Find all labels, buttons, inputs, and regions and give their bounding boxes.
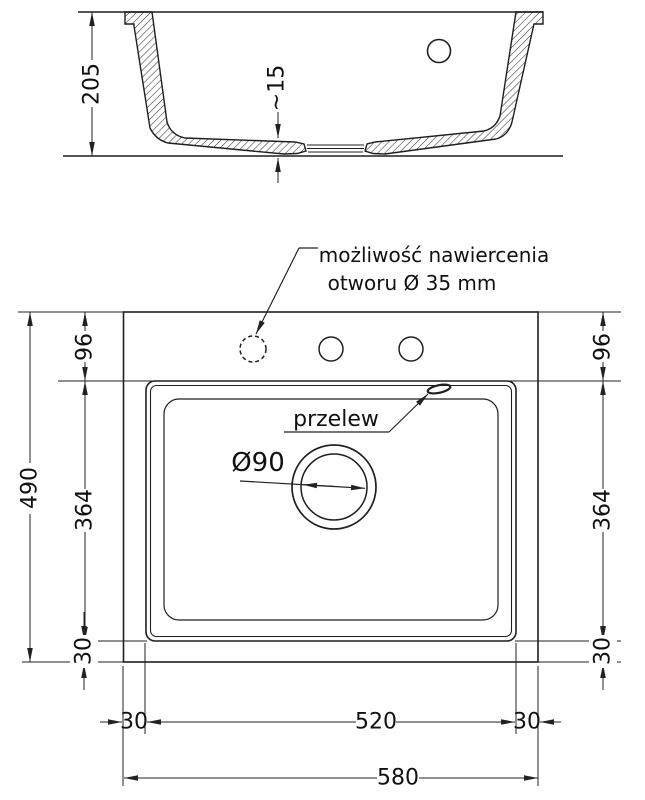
dim-bottom-right-label: 30 — [513, 710, 541, 735]
dim-floor-thickness-label: ~15 — [265, 65, 290, 111]
faucet-hole-right — [399, 337, 423, 361]
section-right-wall — [365, 12, 543, 154]
sink-technical-drawing: 205 ~15 możliwość nawiercenia otworu Ø 3… — [0, 0, 645, 800]
drill-note-line1: możliwość nawiercenia — [319, 243, 549, 267]
dim-left-bottom-label: 30 — [72, 637, 97, 665]
dim-right-bottom-label: 30 — [591, 637, 616, 665]
dim-left-bowl-label: 364 — [73, 489, 98, 531]
dim-right-bowl-label: 364 — [591, 489, 616, 531]
drill-note-leader — [256, 248, 318, 334]
overflow-label: przelew — [293, 407, 379, 432]
dim-bottom-bowl-label: 520 — [355, 710, 397, 735]
sink-outline — [124, 312, 539, 662]
dim-drain-diameter — [240, 481, 365, 488]
drill-note-line2: otworu Ø 35 mm — [328, 271, 497, 295]
overflow-slot — [427, 383, 451, 395]
faucet-hole-optional-dashed — [240, 336, 266, 362]
dim-section-height-label: 205 — [80, 63, 105, 105]
dim-bottom-left-label: 30 — [120, 710, 148, 735]
dim-total-width-label: 580 — [377, 766, 419, 791]
dim-right-top-label: 96 — [591, 333, 616, 361]
section-view: 205 ~15 — [63, 12, 563, 183]
drain-recess-seat — [307, 145, 364, 152]
faucet-hole-center — [319, 337, 343, 361]
dim-drain-diameter-label: Ø90 — [231, 448, 285, 478]
overflow-hole-section — [428, 40, 451, 63]
dim-left-total-label: 490 — [18, 467, 43, 509]
drill-note: możliwość nawiercenia otworu Ø 35 mm — [256, 243, 549, 334]
dim-left-top-label: 96 — [73, 333, 98, 361]
plan-view: Ø90 przelew 490 — [18, 312, 622, 791]
